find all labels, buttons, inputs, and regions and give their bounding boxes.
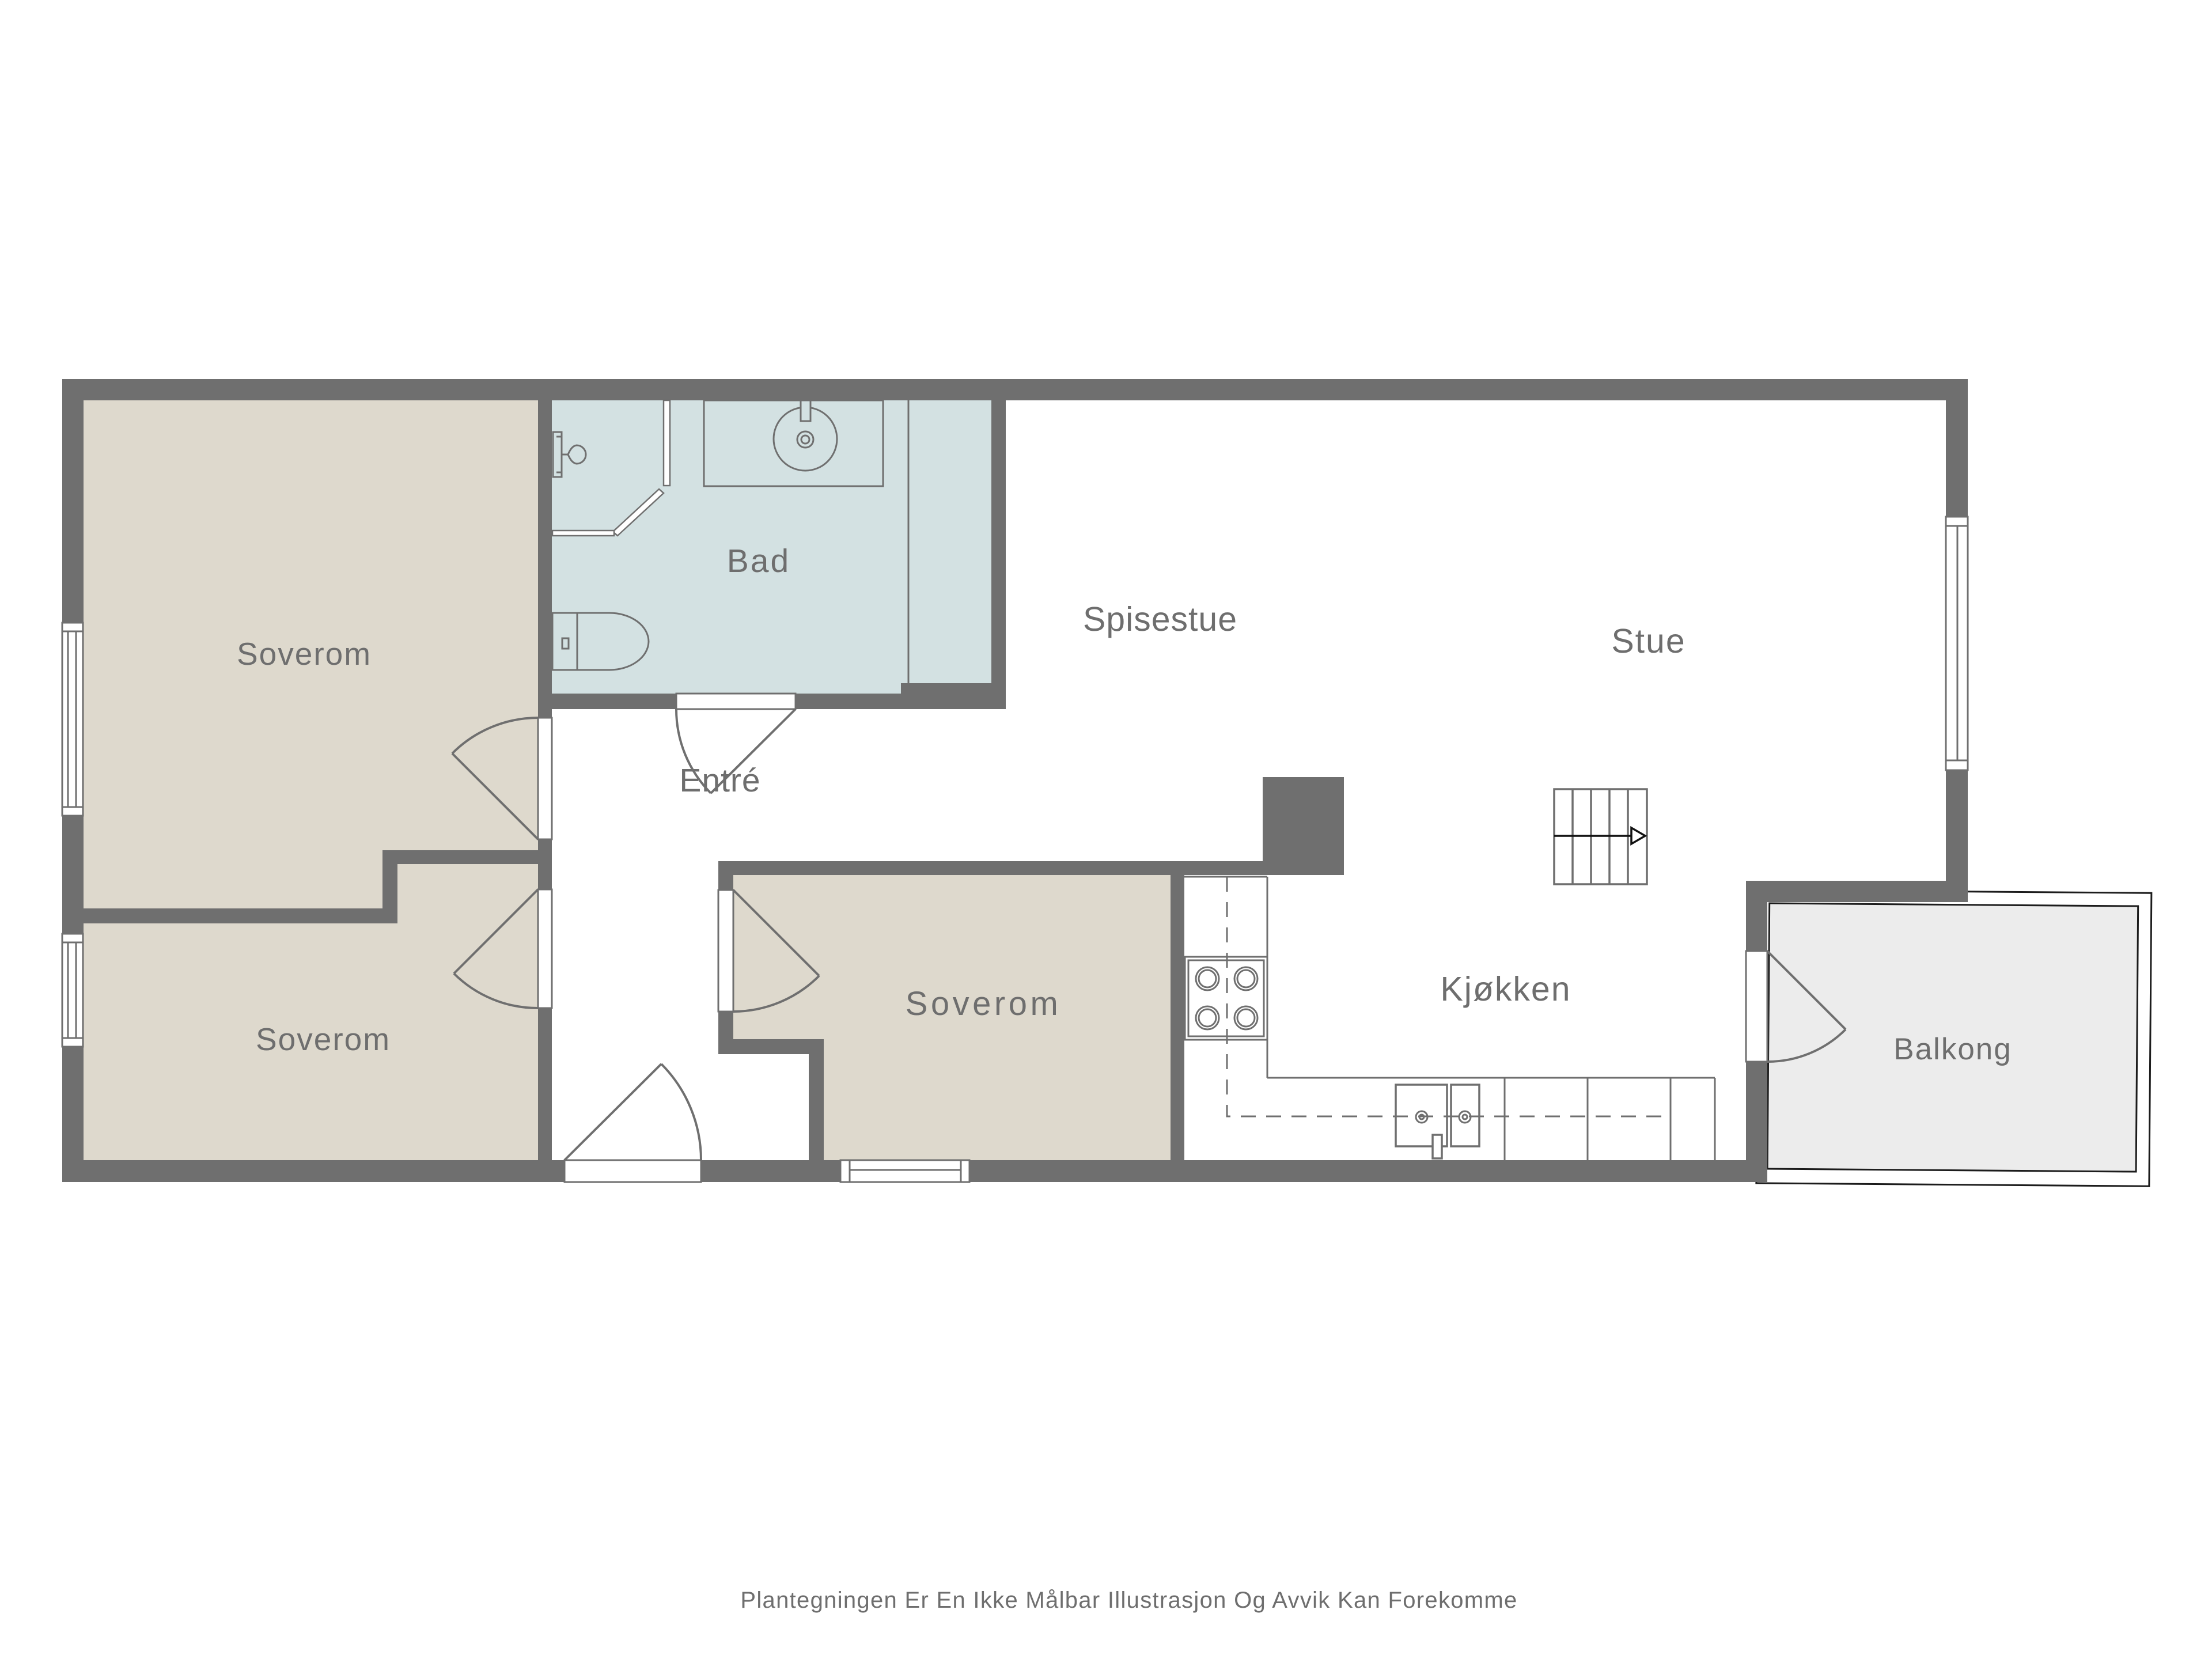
svg-text:Bad: Bad xyxy=(727,543,790,579)
svg-text:Soverom: Soverom xyxy=(906,985,1062,1022)
svg-text:Stue: Stue xyxy=(1611,622,1685,660)
svg-text:Entré: Entré xyxy=(679,762,760,799)
svg-text:Plantegningen Er En Ikke Målba: Plantegningen Er En Ikke Målbar Illustra… xyxy=(740,1588,1517,1613)
svg-text:Spisestue: Spisestue xyxy=(1083,600,1237,638)
svg-text:Kjøkken: Kjøkken xyxy=(1440,970,1571,1008)
svg-text:Soverom: Soverom xyxy=(237,636,372,672)
svg-text:Balkong: Balkong xyxy=(1893,1032,2012,1066)
svg-text:Soverom: Soverom xyxy=(256,1021,391,1057)
